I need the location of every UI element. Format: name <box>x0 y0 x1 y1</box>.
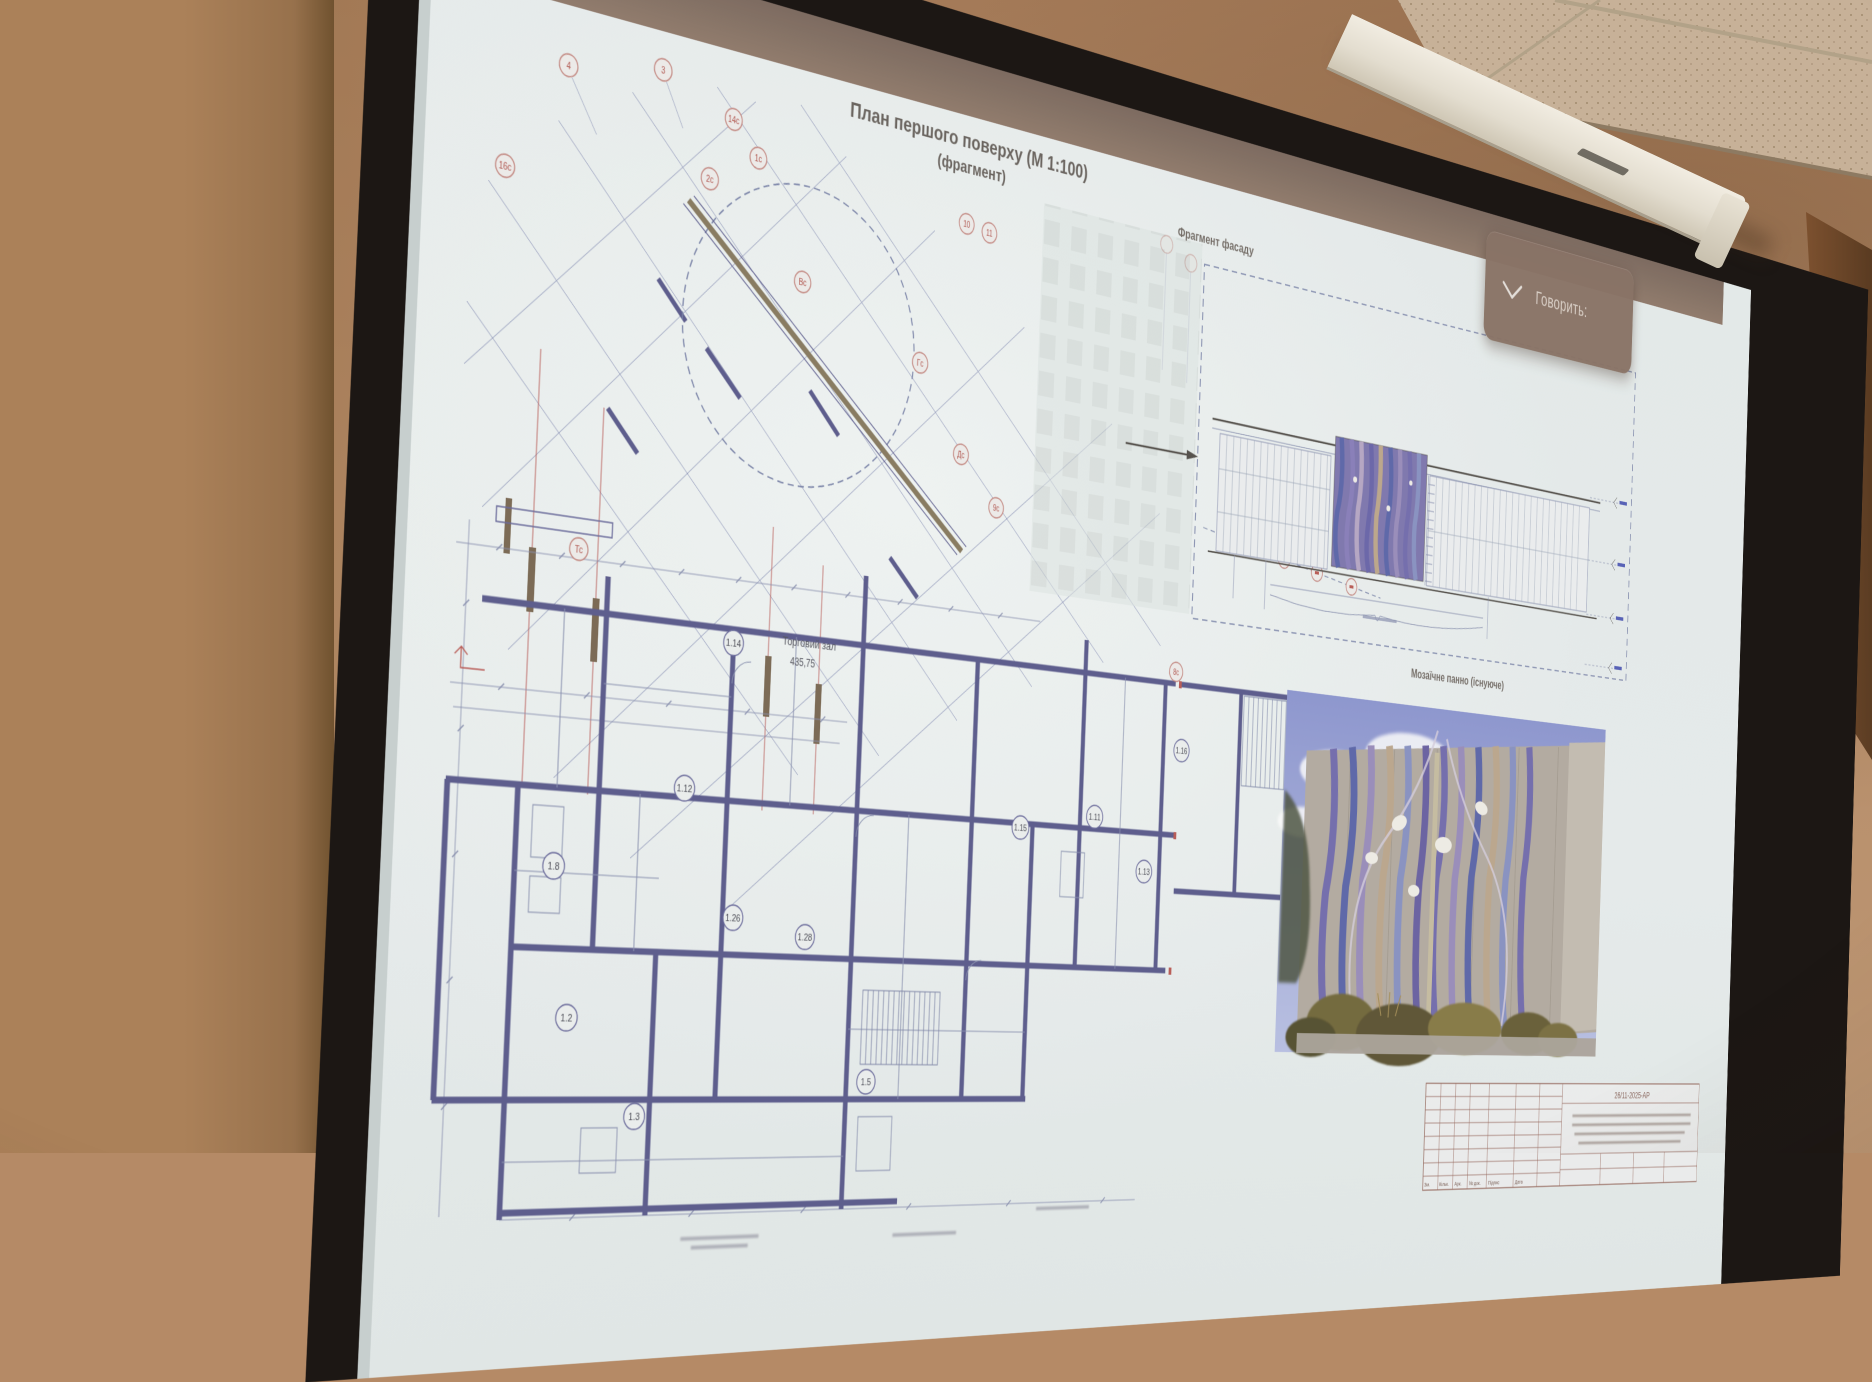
axis-label: 10 <box>963 219 970 230</box>
room-number: 1.14 <box>726 638 742 650</box>
axis-label: Гс <box>917 358 924 369</box>
chevron-down-icon <box>1502 280 1523 303</box>
titleblock-col: № док. <box>1469 1179 1481 1186</box>
axis-label: 1с <box>754 153 762 165</box>
room-number: 1.13 <box>1138 868 1150 878</box>
axis-label: 2с <box>706 174 714 186</box>
room-number: 1.26 <box>725 913 741 924</box>
mosaic-photo <box>1269 689 1606 1068</box>
room-number: 1.15 <box>1014 823 1027 834</box>
speaker-toast-label: Говорить: <box>1535 286 1587 322</box>
doc-number: 26/11-2025-АР <box>1614 1090 1650 1100</box>
room-number: 1.16 <box>1175 746 1187 756</box>
floor-plan-drawing: 4 3 14с 1с 2с 16с 10 11 Вс Гс Дс 9с 8с Т… <box>424 9 1392 1260</box>
level-marks <box>1584 492 1627 675</box>
mosaic-caption: Мозаїчне панно (існуюче) <box>1411 667 1504 693</box>
room-number: 1.5 <box>861 1078 872 1088</box>
axis-label: Тс <box>575 544 584 556</box>
title-block: 26/11-2025-АР Зм. Кільк. Арк. № док. Під… <box>1423 1083 1700 1190</box>
titleblock-col: Дата <box>1515 1178 1523 1185</box>
room-number: 1.3 <box>628 1112 640 1123</box>
room-number: 1.2 <box>560 1013 572 1024</box>
room-name: Торговий зал <box>782 634 836 654</box>
room-number: 1.12 <box>677 783 693 795</box>
axis-label: 11 <box>986 228 993 239</box>
axis-label: 4 <box>566 61 571 73</box>
room-number: 1.8 <box>547 861 559 873</box>
titleblock-col: Зм. <box>1424 1181 1430 1188</box>
titleblock-col: Арк. <box>1454 1180 1461 1187</box>
titleblock-col: Підпис <box>1488 1179 1500 1186</box>
axis-label: 9с <box>993 504 1000 515</box>
room-number: 1.28 <box>797 933 812 944</box>
room-area: 435,75 <box>790 656 815 670</box>
room-number: 1.11 <box>1089 813 1101 823</box>
axis-label: 8с <box>1173 668 1179 678</box>
axis-label: Дс <box>957 450 965 461</box>
titleblock-col: Кільк. <box>1439 1180 1449 1187</box>
housing-logo <box>1576 148 1629 176</box>
axis-label: Вс <box>798 277 807 289</box>
axis-label: 3 <box>661 65 666 77</box>
